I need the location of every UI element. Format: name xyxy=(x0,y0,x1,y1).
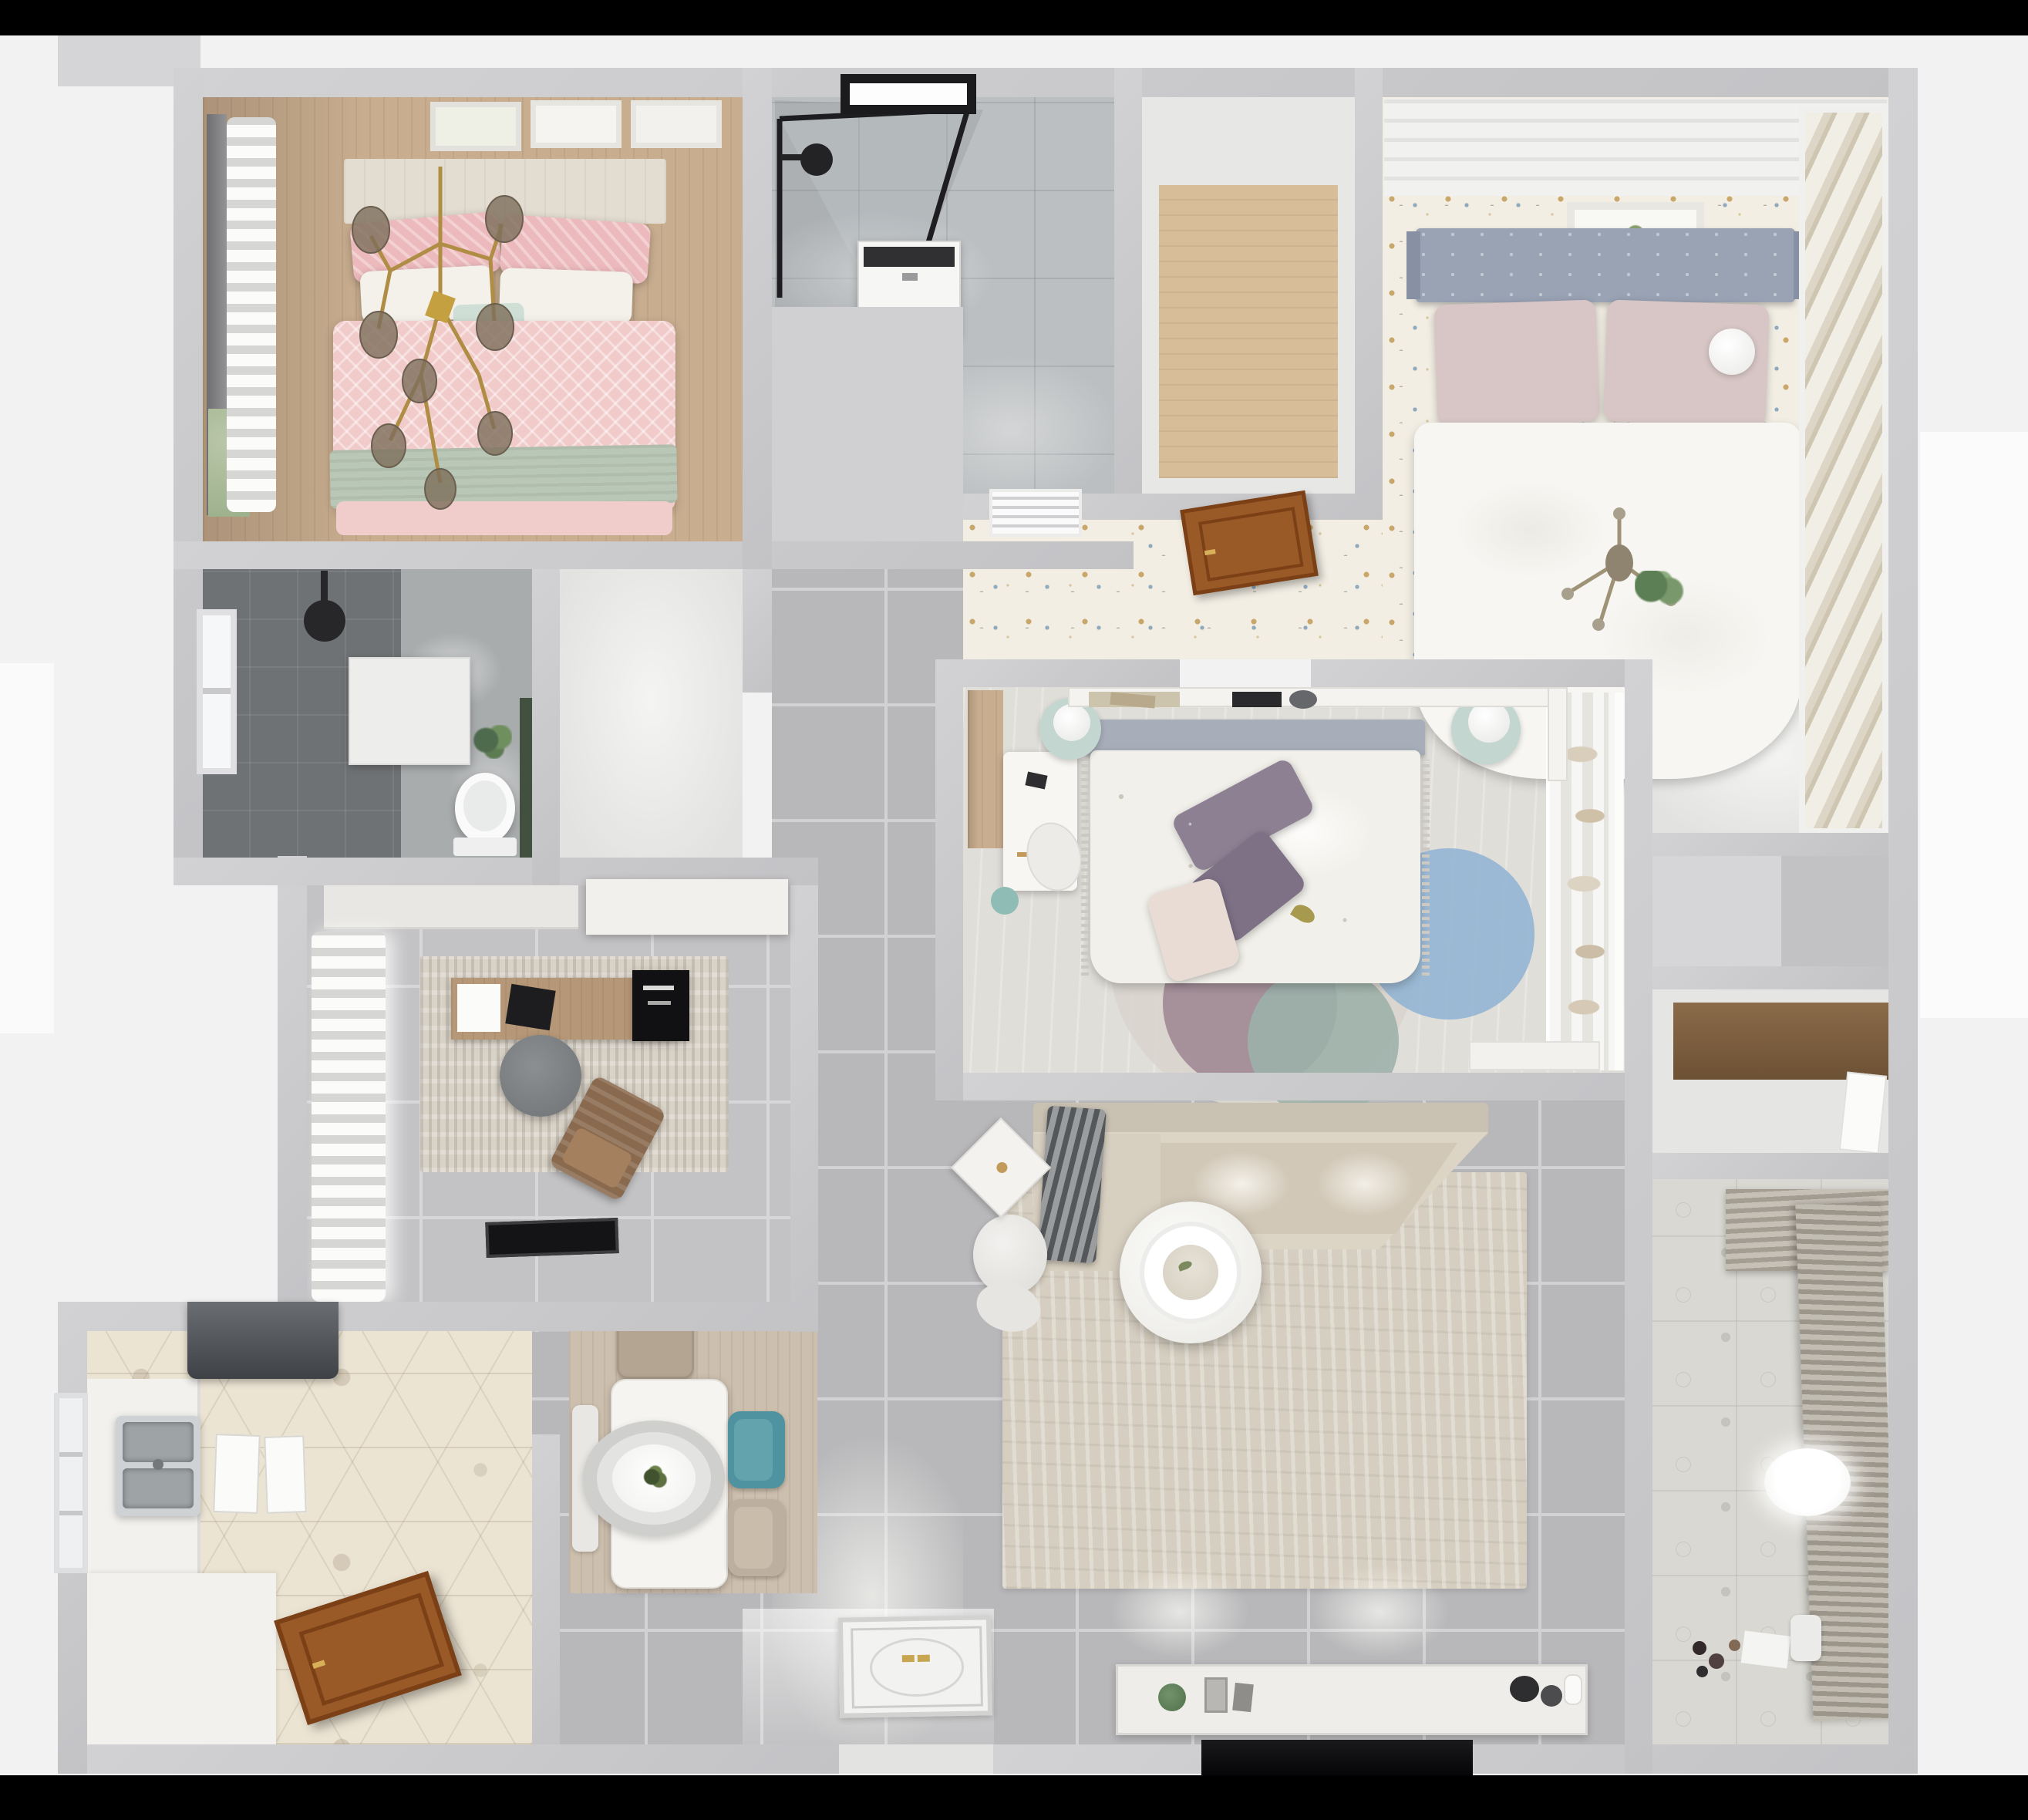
tv-console xyxy=(1116,1664,1588,1735)
bed-fringe xyxy=(1422,760,1430,976)
desk-monitor xyxy=(632,970,689,1041)
sheer-curtain xyxy=(1609,693,1624,1070)
washer-dial xyxy=(902,273,918,281)
wall-study-left xyxy=(278,856,307,1331)
wall-h-bedrooms-bottom xyxy=(173,541,1134,569)
balcony-ceiling-light xyxy=(1764,1448,1851,1516)
wall-v-master-right xyxy=(743,68,772,569)
floor-light-spot xyxy=(1110,1566,1249,1658)
wall-bottom-exterior xyxy=(58,1744,839,1774)
sink-faucet xyxy=(153,1459,163,1470)
white-tray xyxy=(264,1435,306,1514)
dining-chair-beige xyxy=(728,1499,785,1576)
wall-right-exterior xyxy=(1888,68,1918,1774)
mint-nightstand xyxy=(1039,698,1101,760)
white-tray xyxy=(213,1434,261,1514)
ac-vent-grille xyxy=(989,489,1082,537)
study-curtain xyxy=(312,932,386,1302)
console-vase xyxy=(1564,1674,1582,1705)
desk-laptop xyxy=(505,984,555,1030)
floor-light-spot xyxy=(1311,1566,1450,1658)
wall-tv xyxy=(1201,1740,1473,1775)
shower-arm xyxy=(780,154,808,160)
wall-v-bath2-right xyxy=(532,569,560,885)
guest-headboard xyxy=(1416,228,1795,302)
sink-basin xyxy=(123,1422,194,1462)
sink-basin xyxy=(123,1468,194,1508)
teal-kettle xyxy=(991,887,1019,915)
monitor-sketch xyxy=(643,986,674,990)
wood-shelf-niche xyxy=(1673,1003,1888,1080)
green-accent-wall xyxy=(520,698,532,858)
ledge-plant xyxy=(1635,571,1689,608)
console-plant xyxy=(1158,1684,1186,1711)
console-decor-dark xyxy=(1541,1685,1562,1707)
chair-seat-inner xyxy=(734,1507,773,1569)
desk-paper xyxy=(457,984,500,1032)
kids-bed xyxy=(1086,720,1425,986)
entry-door-threshold xyxy=(839,1744,993,1774)
floorplan-render xyxy=(0,0,2028,1820)
front-door-panel xyxy=(838,1615,992,1717)
washer-control-panel xyxy=(864,247,955,267)
study-cabinet xyxy=(324,885,578,929)
toy xyxy=(1693,1641,1706,1655)
art-frame xyxy=(631,100,722,148)
sectional-sofa xyxy=(1033,1103,1488,1249)
wall-corridor-step xyxy=(772,307,963,569)
door-panel xyxy=(1198,507,1304,581)
door-gold-handles xyxy=(902,1655,915,1662)
console-frame xyxy=(1232,1683,1254,1712)
wall-v-bath1-closet xyxy=(1114,68,1142,494)
bath2-plant xyxy=(472,725,512,759)
wall-v-study-right xyxy=(790,885,818,1332)
wall-balcony-top xyxy=(1652,1153,1888,1179)
door-gold-handles xyxy=(918,1655,930,1662)
wall-kids-top-right-seg xyxy=(1311,659,1652,687)
blush-pillow xyxy=(1433,299,1599,426)
window-mullion xyxy=(59,1452,83,1457)
coffee-table-tray xyxy=(1163,1245,1218,1300)
range-hood xyxy=(187,1302,339,1379)
bed-fringe xyxy=(1081,760,1089,976)
side-table-decor xyxy=(995,1160,1010,1175)
wall-v-closet-guest xyxy=(1355,68,1383,520)
white-roll xyxy=(1791,1615,1821,1661)
kids-wardrobe-wood-strip xyxy=(968,690,1003,848)
double-sink xyxy=(116,1416,200,1516)
pendant-lamp-oval xyxy=(583,1421,725,1536)
shelf-bowl xyxy=(1289,690,1317,709)
bath2-wall-cabinet xyxy=(349,657,470,765)
tray-leaf-decor xyxy=(1177,1259,1193,1272)
right-closet-niche xyxy=(1781,856,1888,966)
window-bench xyxy=(1469,1041,1600,1070)
window-mullion xyxy=(59,1511,83,1515)
wall-rightcol-1 xyxy=(1652,833,1888,856)
kitchen-window xyxy=(54,1393,88,1573)
shower-arm xyxy=(321,571,328,605)
ball-lamp xyxy=(1709,329,1755,375)
console-decor-dark xyxy=(1510,1676,1539,1702)
nightstand-lamp xyxy=(1468,701,1510,743)
nightstand-lamp xyxy=(1053,704,1090,741)
closet-wood-floor xyxy=(1159,185,1338,478)
background-patch xyxy=(0,663,54,1033)
background-patch xyxy=(1920,432,2028,1018)
console-frame xyxy=(1204,1677,1228,1713)
wall-top-exterior xyxy=(173,68,1918,97)
study-cabinet-block xyxy=(586,879,788,935)
toy xyxy=(1696,1666,1708,1677)
wall-v-corridor-stub xyxy=(743,569,772,693)
wall-v-living-right xyxy=(1625,659,1652,1774)
wall-v-kids-left xyxy=(935,659,963,1100)
gray-striped-blanket xyxy=(1037,1106,1107,1264)
wall-kitchen-dining xyxy=(532,1434,560,1744)
top-letterbox xyxy=(0,0,2028,35)
desk-items xyxy=(1025,771,1047,789)
toilet-seat xyxy=(463,780,507,831)
bath2-window xyxy=(197,609,237,774)
toy xyxy=(1729,1640,1740,1651)
shower-head-icon xyxy=(304,600,345,642)
inner-hall-floor xyxy=(560,569,743,858)
window-mullion xyxy=(203,688,231,694)
gold-sprig-decor xyxy=(1554,500,1685,639)
gold-branch-chandelier xyxy=(336,143,544,514)
wall-rightcol-2 xyxy=(1652,966,1888,989)
sliding-wardrobe xyxy=(1799,106,1888,834)
wall-kids-top-left-seg xyxy=(963,659,1180,687)
dining-chair-teal xyxy=(728,1411,785,1488)
chair-seat-inner xyxy=(734,1419,773,1481)
wall-kids-bottom xyxy=(963,1073,1652,1100)
shelf-tablet xyxy=(1232,692,1282,707)
monitor-sketch xyxy=(648,1001,671,1005)
wall-h-study-kitchen xyxy=(58,1302,818,1331)
white-door-leaf xyxy=(1839,1072,1887,1154)
toilet-bowl xyxy=(455,773,515,844)
coffee-table xyxy=(1120,1202,1262,1343)
toy xyxy=(1709,1653,1724,1669)
kitchen-counter-bottom xyxy=(87,1573,276,1744)
toilet-tank xyxy=(453,838,517,856)
headboard-shelf-side xyxy=(1548,687,1568,781)
office-chair xyxy=(500,1035,581,1117)
master-curtain xyxy=(227,117,276,512)
bottom-letterbox xyxy=(0,1775,2028,1820)
bathroom-window xyxy=(841,74,976,114)
centerpiece-plant xyxy=(640,1464,669,1493)
study-doormat xyxy=(485,1218,619,1258)
paper-sheet xyxy=(1741,1631,1791,1669)
art-frame xyxy=(531,100,622,148)
guest-headboard-wing xyxy=(1406,231,1420,299)
